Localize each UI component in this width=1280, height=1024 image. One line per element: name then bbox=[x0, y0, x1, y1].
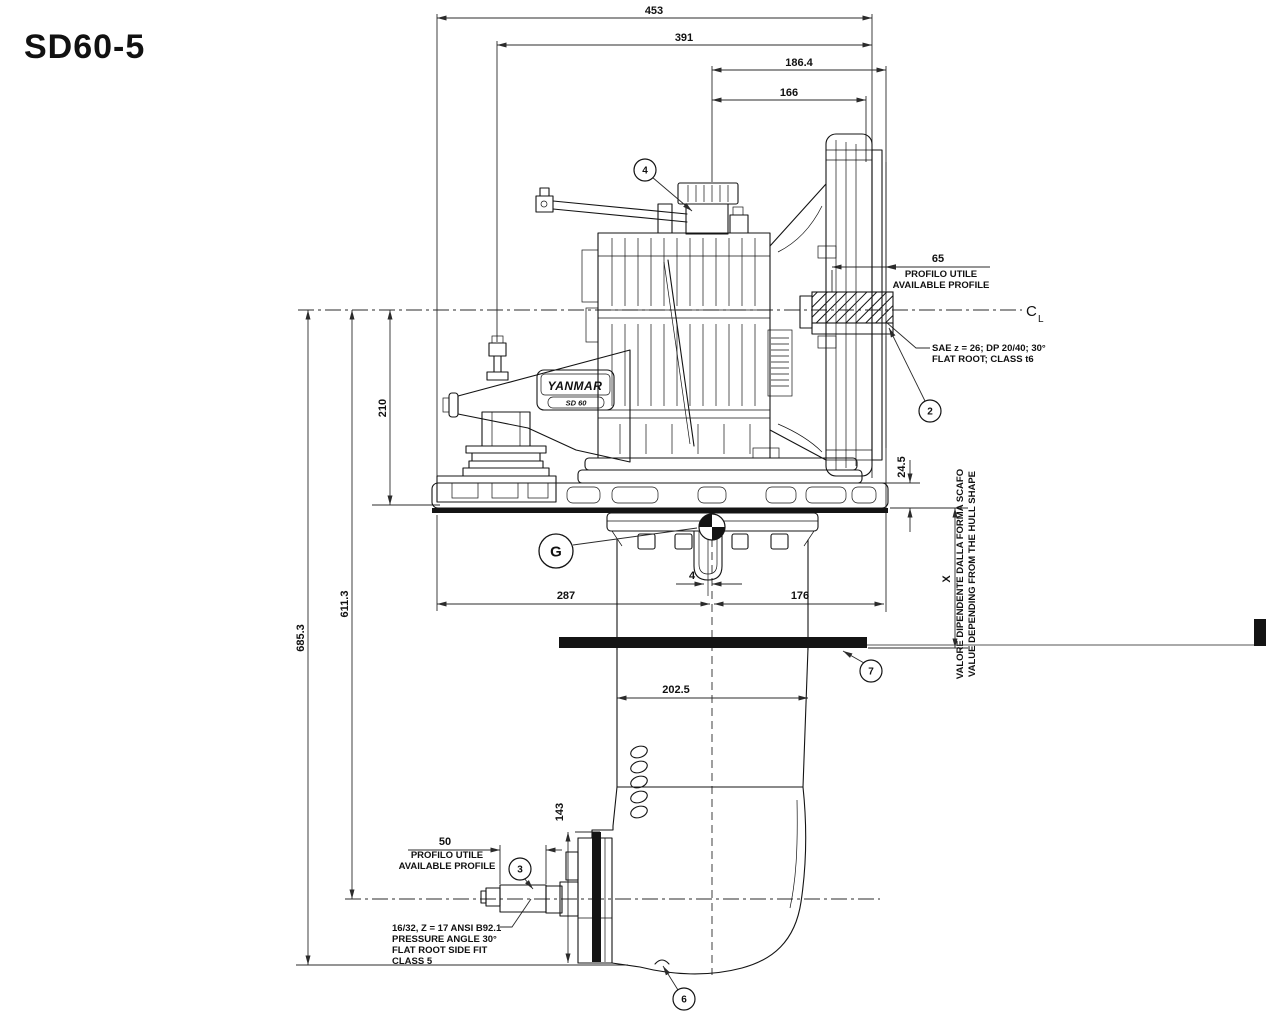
note-profile-top-1: PROFILO UTILE bbox=[905, 269, 977, 280]
top-cap bbox=[658, 183, 748, 234]
engine-block bbox=[582, 233, 792, 458]
notes-layer: PROFILO UTILE AVAILABLE PROFILE SAE z = … bbox=[392, 269, 1046, 967]
drain-plug bbox=[655, 960, 669, 964]
balloon-G: G bbox=[539, 528, 697, 568]
dim-176: 176 bbox=[791, 590, 809, 602]
dim-65-arrow bbox=[885, 264, 896, 270]
dim-24-5: 24.5 bbox=[896, 456, 908, 477]
svg-text:7: 7 bbox=[868, 667, 874, 678]
shift-lever bbox=[536, 188, 687, 222]
decal-text-lines bbox=[771, 338, 789, 386]
note-sae-1: SAE z = 26; DP 20/40; 30° bbox=[932, 343, 1046, 354]
note-profile-bottom-2: AVAILABLE PROFILE bbox=[399, 861, 496, 872]
centerline-symbol-l: L bbox=[1038, 314, 1044, 325]
dim-166: 166 bbox=[780, 87, 798, 99]
svg-text:G: G bbox=[550, 544, 562, 561]
dim-50: 50 bbox=[439, 836, 451, 848]
note-profile-bottom-1: PROFILO UTILE bbox=[411, 850, 483, 861]
dim-143: 143 bbox=[554, 803, 566, 821]
hull-line-tick bbox=[1254, 619, 1266, 646]
svg-text:4: 4 bbox=[642, 166, 648, 177]
note-hull-2: VALUE DEPENDING FROM THE HULL SHAPE bbox=[967, 471, 978, 677]
spline-leader bbox=[500, 899, 531, 927]
dim-202-5: 202.5 bbox=[662, 684, 690, 696]
dim-391: 391 bbox=[675, 32, 693, 44]
note-spline-2: PRESSURE ANGLE 30° bbox=[392, 934, 497, 945]
brand-label: YANMAR bbox=[548, 379, 603, 393]
note-spline-4: CLASS 5 bbox=[392, 956, 433, 967]
hull-plate bbox=[559, 619, 1266, 648]
balloon-4: 4 bbox=[634, 159, 692, 211]
svg-text:2: 2 bbox=[927, 407, 933, 418]
dim-65: 65 bbox=[932, 253, 944, 265]
dim-210: 210 bbox=[377, 399, 389, 417]
hull-flange bbox=[432, 448, 888, 513]
note-sae-2: FLAT ROOT; CLASS t6 bbox=[932, 354, 1034, 365]
note-profile-top-2: AVAILABLE PROFILE bbox=[893, 280, 990, 291]
note-spline-3: FLAT ROOT SIDE FIT bbox=[392, 945, 488, 956]
front-mount bbox=[437, 336, 630, 502]
dim-685-3: 685.3 bbox=[295, 624, 307, 652]
balloon-3: 3 bbox=[509, 858, 533, 889]
drive-leg bbox=[617, 540, 808, 820]
svg-text:6: 6 bbox=[681, 995, 687, 1006]
dim-453: 453 bbox=[645, 5, 663, 17]
centerline-symbol-c: C bbox=[1026, 303, 1037, 320]
page-title: SD60-5 bbox=[24, 28, 145, 66]
dim-186-4: 186.4 bbox=[785, 57, 813, 69]
center-of-gravity-symbol bbox=[699, 514, 725, 540]
svg-text:3: 3 bbox=[517, 865, 523, 876]
balloon-7: 7 bbox=[843, 651, 882, 682]
input-coupling bbox=[800, 292, 893, 334]
dim-X: X bbox=[941, 575, 953, 583]
technical-drawing: SD60-5 453 391 186.4 166 210 611.3 685.3… bbox=[0, 0, 1280, 1024]
model-label: SD 60 bbox=[566, 399, 588, 408]
brand-plate: YANMAR SD 60 bbox=[537, 370, 614, 410]
dim-611-3: 611.3 bbox=[339, 591, 351, 618]
dim-287: 287 bbox=[557, 590, 575, 602]
note-hull-1: VALORE DIPENDENTE DALLA FORMA SCAFO bbox=[955, 469, 966, 679]
gear-housing bbox=[560, 787, 806, 974]
note-spline-1: 16/32, Z = 17 ANSI B92.1 bbox=[392, 923, 502, 934]
drawing-sheet: SD60-5 453 391 186.4 166 210 611.3 685.3… bbox=[0, 0, 1280, 1024]
